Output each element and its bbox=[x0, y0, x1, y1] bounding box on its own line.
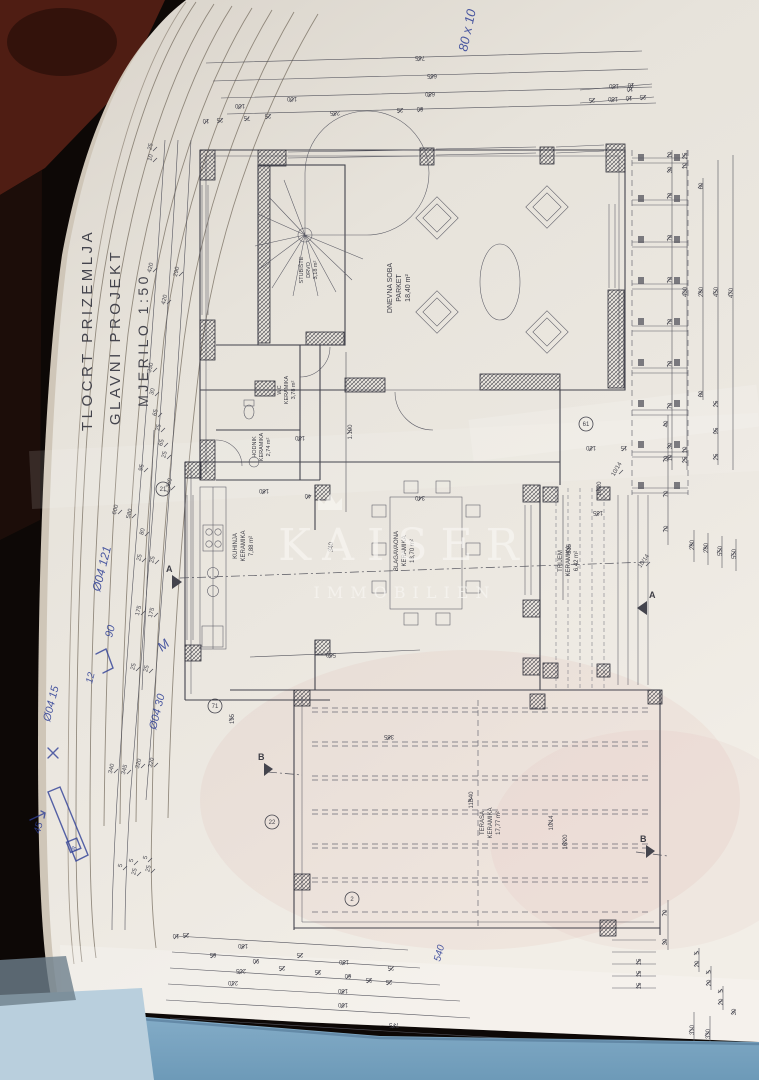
svg-text:WC: WC bbox=[277, 385, 283, 394]
svg-text:2,74 m²: 2,74 m² bbox=[266, 438, 272, 457]
svg-text:KERAMIKA: KERAMIKA bbox=[566, 545, 572, 576]
section-b-right: B bbox=[640, 834, 647, 844]
floor-plan-svg: 7656651006301010257525235256010015010251… bbox=[0, 0, 759, 1080]
section-a-right: A bbox=[649, 590, 656, 600]
svg-text:DNEVNA SOBA: DNEVNA SOBA bbox=[387, 263, 394, 314]
title-line-3: MJERILO 1:50 bbox=[135, 273, 151, 407]
position-number: 21 bbox=[160, 487, 167, 493]
svg-text:TERASA: TERASA bbox=[480, 811, 486, 835]
svg-text:3,78 m²: 3,78 m² bbox=[291, 381, 297, 400]
svg-text:6,42 m²: 6,42 m² bbox=[574, 551, 580, 571]
position-number: 61 bbox=[583, 422, 590, 428]
title-line-2: GLAVNI PROJEKT bbox=[107, 249, 124, 425]
svg-text:KERAMIKA: KERAMIKA bbox=[284, 375, 290, 404]
svg-text:TRIJEM: TRIJEM bbox=[558, 550, 564, 572]
carpet-shadow bbox=[7, 8, 117, 76]
svg-text:7,88 m²: 7,88 m² bbox=[249, 536, 255, 556]
svg-text:17,77 m²: 17,77 m² bbox=[496, 811, 502, 835]
position-number: 22 bbox=[269, 820, 276, 826]
watermark-subtitle: IMMOBILIEN bbox=[314, 583, 497, 602]
watermark-name: KAISER bbox=[278, 520, 532, 571]
title-line-1: TLOCRT PRIZEMLJA bbox=[79, 229, 96, 431]
svg-text:STUBIŠTE: STUBIŠTE bbox=[298, 256, 305, 283]
room-label-terasa: TERASA KERAMIKA 17,77 m² bbox=[480, 807, 502, 838]
svg-text:18,40 m²: 18,40 m² bbox=[405, 274, 412, 302]
svg-text:PARKET: PARKET bbox=[396, 274, 403, 302]
position-number: 71 bbox=[212, 704, 219, 710]
svg-text:DRVO: DRVO bbox=[306, 261, 312, 278]
svg-text:3,18 m²: 3,18 m² bbox=[313, 261, 319, 280]
section-a-left: A bbox=[166, 564, 173, 574]
svg-text:HODNIK: HODNIK bbox=[252, 436, 258, 458]
shadow-wedge bbox=[0, 956, 76, 1006]
svg-text:KERAMIKA: KERAMIKA bbox=[259, 432, 265, 461]
svg-text:KUHINJA: KUHINJA bbox=[233, 533, 239, 559]
svg-text:KERAMIKA: KERAMIKA bbox=[488, 807, 494, 838]
section-b-left: B bbox=[258, 752, 265, 762]
photo-of-floor-plan: 7656651006301010257525235256010015010251… bbox=[0, 0, 759, 1080]
svg-text:KERAMIKA: KERAMIKA bbox=[241, 530, 247, 561]
